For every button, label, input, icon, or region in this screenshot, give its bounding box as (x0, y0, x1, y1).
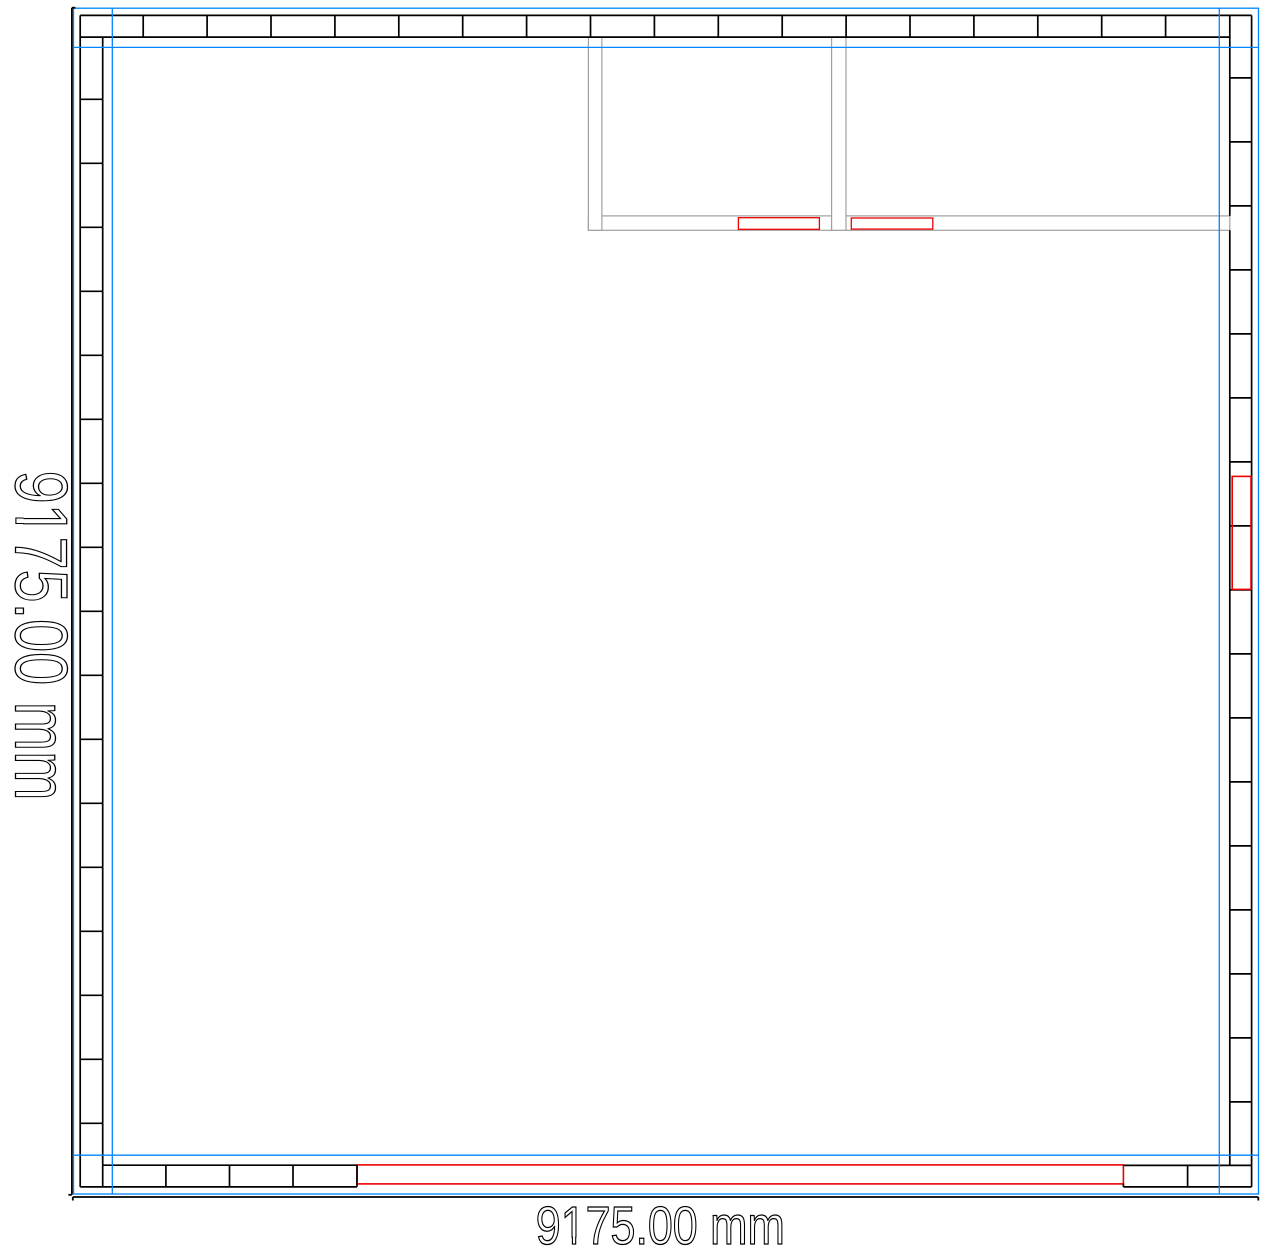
svg-text:9175.00 mm: 9175.00 mm (536, 1196, 785, 1256)
svg-text:9175.00 mm: 9175.00 mm (0, 471, 83, 801)
